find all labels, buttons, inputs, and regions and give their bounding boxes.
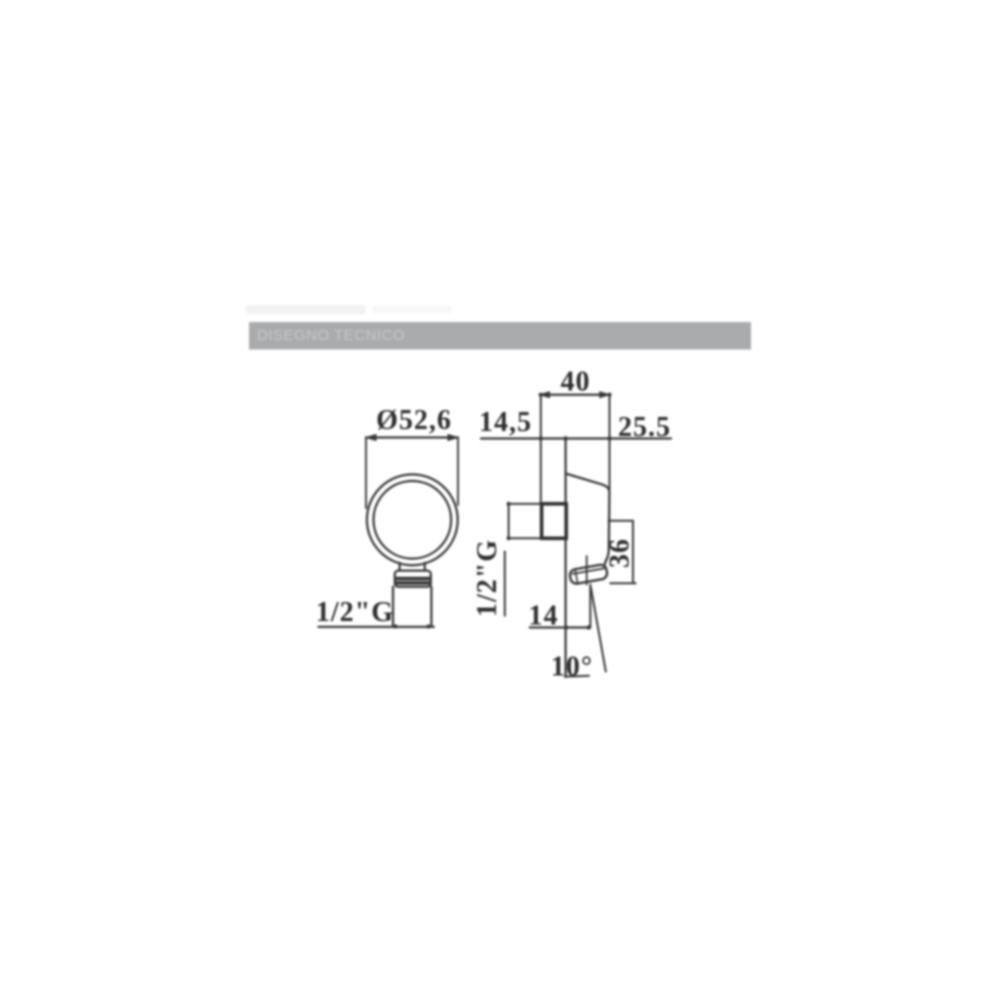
svg-text:14: 14	[529, 601, 559, 632]
svg-text:1/2"G: 1/2"G	[316, 597, 394, 628]
svg-text:10°: 10°	[551, 652, 593, 683]
svg-text:36: 36	[605, 538, 636, 568]
svg-text:Ø52,6: Ø52,6	[376, 405, 452, 436]
svg-text:DISEGNO TECNICO: DISEGNO TECNICO	[257, 327, 405, 344]
svg-text:40: 40	[561, 367, 591, 398]
svg-text:25.5: 25.5	[618, 412, 671, 443]
svg-text:1/2"G: 1/2"G	[472, 539, 503, 617]
svg-text:14,5: 14,5	[479, 407, 532, 438]
